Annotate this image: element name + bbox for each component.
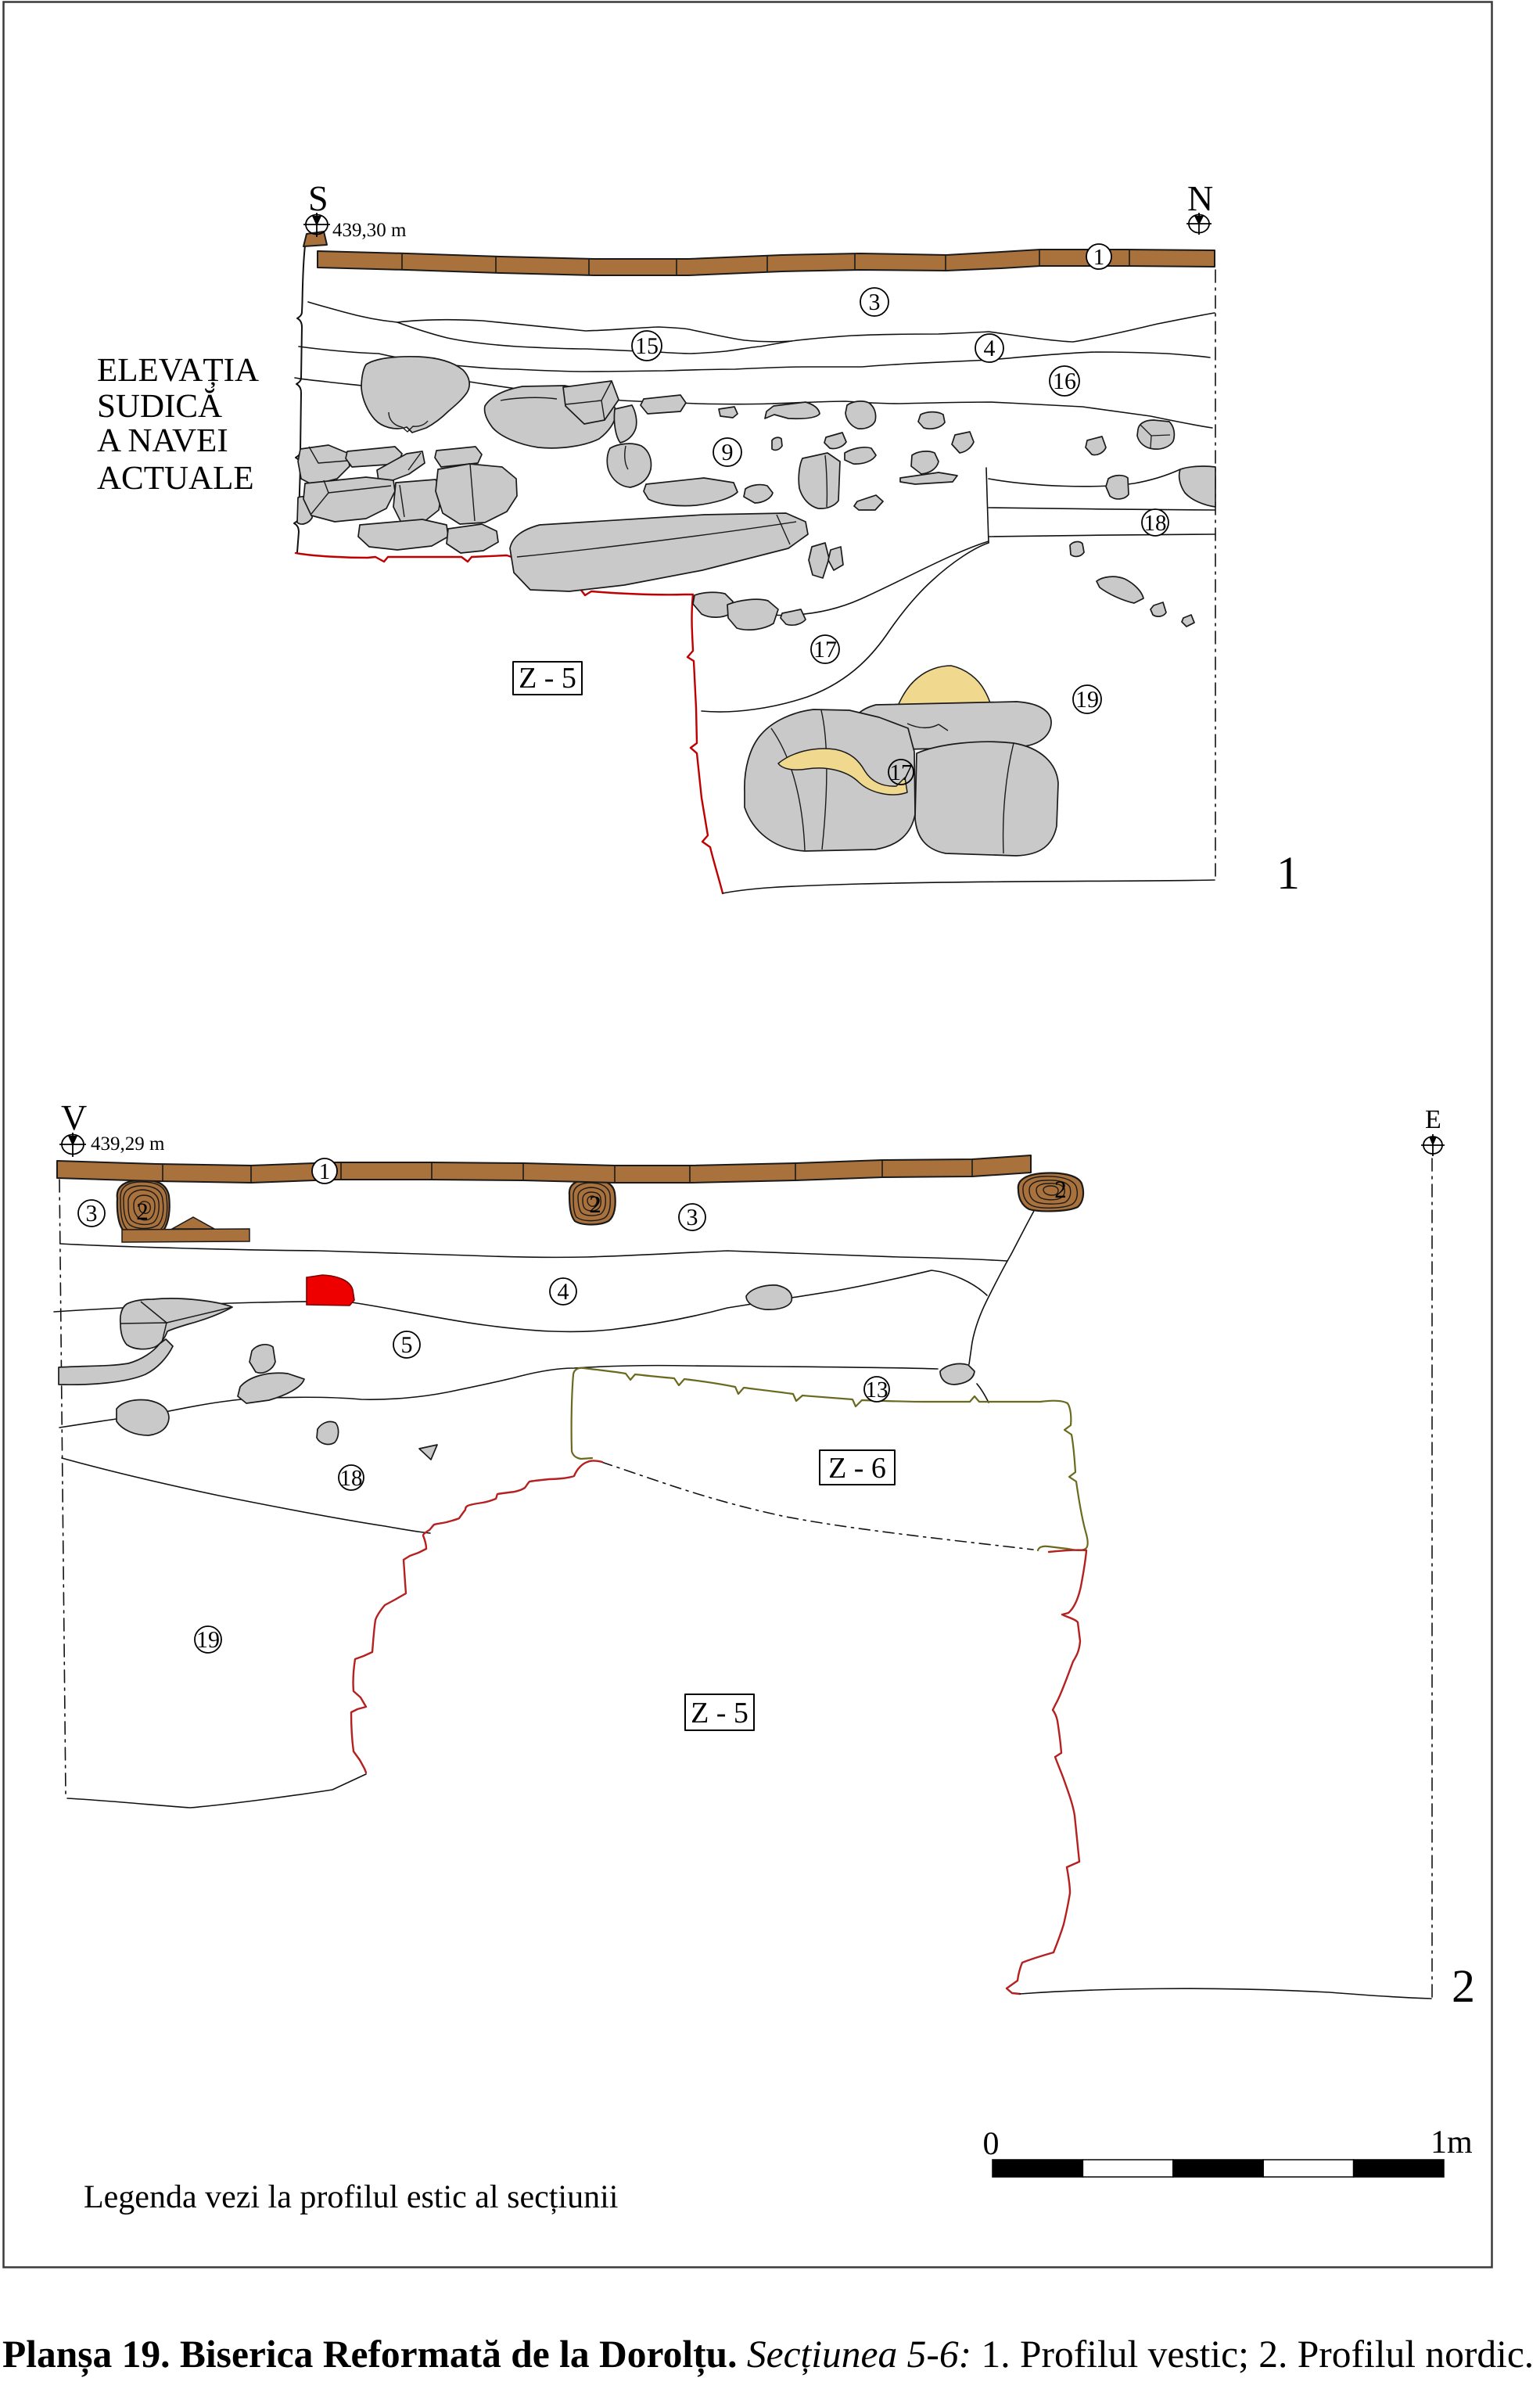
- svg-text:13: 13: [866, 1377, 888, 1403]
- svg-text:Z - 6: Z - 6: [828, 1452, 886, 1485]
- svg-text:1: 1: [1276, 847, 1300, 899]
- svg-text:1: 1: [319, 1159, 331, 1184]
- svg-text:Planșa 19. Biserica Reformată: Planșa 19. Biserica Reformată de la Doro…: [2, 2333, 1534, 2377]
- svg-text:4: 4: [984, 336, 996, 361]
- svg-text:3: 3: [86, 1201, 98, 1227]
- svg-text:17: 17: [890, 760, 913, 785]
- svg-text:Z - 5: Z - 5: [519, 662, 576, 695]
- svg-text:2: 2: [1054, 1176, 1067, 1203]
- svg-text:9: 9: [722, 440, 734, 465]
- svg-text:1: 1: [1093, 245, 1105, 270]
- svg-text:Legenda vezi la profilul estic: Legenda vezi la profilul estic al secțiu…: [84, 2179, 618, 2215]
- svg-text:SUDICĂ: SUDICĂ: [97, 388, 222, 425]
- svg-text:17: 17: [813, 637, 837, 663]
- svg-text:V: V: [61, 1097, 87, 1137]
- svg-text:ACTUALE: ACTUALE: [97, 460, 254, 497]
- svg-text:ELEVAȚIA: ELEVAȚIA: [97, 352, 259, 389]
- svg-text:439,30 m: 439,30 m: [332, 220, 407, 241]
- svg-text:3: 3: [869, 289, 881, 315]
- svg-text:0: 0: [983, 2126, 1000, 2162]
- svg-text:16: 16: [1053, 368, 1076, 394]
- svg-text:19: 19: [1075, 687, 1099, 713]
- svg-text:5: 5: [401, 1332, 413, 1358]
- svg-text:18: 18: [1144, 511, 1167, 536]
- svg-text:A NAVEI: A NAVEI: [97, 422, 228, 459]
- svg-text:1m: 1m: [1431, 2125, 1473, 2161]
- svg-text:4: 4: [558, 1279, 569, 1305]
- svg-text:N: N: [1187, 178, 1213, 218]
- svg-text:19: 19: [196, 1627, 220, 1653]
- svg-text:439,29 m: 439,29 m: [91, 1133, 165, 1155]
- svg-text:E: E: [1425, 1105, 1441, 1134]
- svg-text:2: 2: [136, 1198, 149, 1225]
- svg-text:2: 2: [589, 1191, 601, 1218]
- svg-text:15: 15: [635, 333, 659, 359]
- svg-text:Z - 5: Z - 5: [691, 1697, 748, 1729]
- svg-text:3: 3: [687, 1205, 698, 1230]
- svg-text:S: S: [308, 178, 328, 218]
- svg-text:2: 2: [1452, 1960, 1475, 2012]
- svg-text:18: 18: [340, 1466, 363, 1491]
